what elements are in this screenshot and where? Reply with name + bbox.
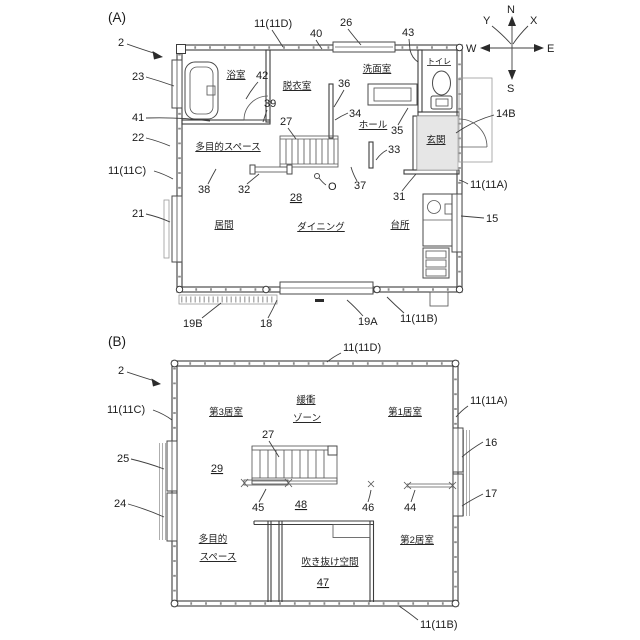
a-ref-33: 33 — [388, 144, 400, 156]
b-leader-27 — [269, 441, 279, 457]
a-ref-11c: 11(11C) — [108, 165, 146, 177]
a-room-dressing: 脱衣室 — [283, 80, 312, 92]
a-ref-15: 15 — [486, 213, 498, 225]
a-corner-post — [177, 45, 186, 54]
b-ref-2: 2 — [118, 365, 124, 377]
a-porch-outline — [459, 78, 492, 162]
compass-y-label: Y — [483, 15, 491, 27]
b-ref-17: 17 — [485, 488, 497, 500]
b-ref-29: 29 — [211, 463, 223, 475]
compass-east-arrow — [534, 44, 544, 52]
a-leader-34 — [335, 113, 348, 120]
b-ref-27: 27 — [262, 429, 274, 441]
a-ref-42: 42 — [256, 70, 268, 82]
a-entrance-kitchen-wall — [404, 170, 459, 174]
diagram-b: (B) — [107, 334, 508, 631]
diagram-a: (A) — [108, 10, 516, 330]
a-ref-28: 28 — [290, 192, 302, 204]
a-exterior-unit — [430, 292, 448, 306]
b-leader-45 — [259, 489, 266, 502]
a-ref-19a: 19A — [358, 316, 378, 328]
b-leader-24 — [128, 504, 164, 517]
a-room-washroom: 洗面室 — [363, 63, 392, 75]
a-ref-2: 2 — [118, 37, 124, 49]
a-toilet-fixtures — [431, 71, 452, 109]
a-toilet-wall-v — [418, 50, 422, 112]
a-ref-34: 34 — [349, 108, 361, 120]
b-multipurpose-line1: 多目的 — [199, 533, 228, 545]
b-ref-25: 25 — [117, 453, 129, 465]
b-multipurpose-line2: スペース — [200, 552, 237, 563]
a-leader-31 — [402, 174, 416, 191]
b-arrowhead-2 — [152, 379, 162, 387]
compass-rose: N S W E X Y — [466, 4, 554, 95]
b-ref-45: 45 — [252, 502, 264, 514]
a-leader-11c — [154, 171, 173, 179]
a-hall-divider-post — [329, 84, 333, 138]
a-stair-newel-o — [315, 174, 320, 179]
a-leader-22 — [146, 138, 170, 146]
a-ref-o: O — [328, 181, 337, 193]
a-ref-39: 39 — [264, 98, 276, 110]
diagram-a-title: (A) — [108, 10, 126, 25]
a-toilet-bowl — [433, 71, 451, 95]
b-leader-17 — [462, 494, 483, 506]
a-staircase — [250, 136, 338, 185]
patent-figure-page: (A) — [0, 0, 640, 640]
b-ref-16: 16 — [485, 437, 497, 449]
a-leader-32 — [247, 174, 259, 184]
a-arrowhead-2 — [153, 51, 164, 60]
b-partition-44 — [368, 481, 456, 489]
a-room-bathroom: 浴室 — [226, 69, 245, 81]
a-ref-31: 31 — [393, 191, 405, 203]
a-entrance-wall-v — [413, 116, 417, 170]
a-leader-36 — [334, 90, 344, 107]
a-toilet-tank — [431, 96, 452, 109]
a-bathroom-wall-h — [182, 120, 270, 124]
a-leader-2 — [127, 44, 157, 54]
a-leader-19a — [347, 300, 363, 316]
a-room-multipurpose: 多目的スペース — [195, 141, 260, 153]
b-ref-46: 46 — [362, 502, 374, 514]
a-room-dining: ダイニング — [297, 221, 345, 233]
b-ref-48: 48 — [295, 499, 307, 511]
a-leader-42 — [246, 82, 258, 99]
b-buffer-zone-line1: 緩衝 — [296, 394, 316, 406]
a-leader-35 — [398, 108, 408, 125]
a-ref-32: 32 — [238, 184, 250, 196]
b-staircase — [241, 446, 337, 487]
a-living-shutter — [164, 200, 169, 258]
a-vanity-counter — [368, 84, 417, 105]
a-ref-43: 43 — [402, 27, 414, 39]
compass-x-label: X — [530, 15, 538, 27]
compass-y-line — [492, 26, 511, 44]
a-hall-post-33 — [369, 142, 373, 168]
a-leader-27 — [288, 128, 296, 139]
a-stair-railing — [252, 167, 291, 172]
floor-plan-figure: (A) — [0, 0, 640, 640]
a-leader-33 — [376, 150, 387, 160]
a-leader-15 — [461, 216, 484, 218]
a-leader-18 — [268, 300, 277, 318]
b-leader-2 — [127, 372, 155, 381]
compass-e-label: E — [547, 43, 554, 55]
b-buffer-zone-line2: ゾーン — [293, 413, 321, 424]
a-leader-23 — [146, 77, 174, 86]
compass-s-label: S — [507, 83, 514, 95]
compass-north-arrow — [508, 16, 516, 26]
a-leader-11b — [387, 297, 404, 313]
a-ref-23: 23 — [132, 71, 144, 83]
b-leader-11b — [399, 606, 418, 620]
a-ref-26: 26 — [340, 17, 352, 29]
a-leader-21 — [146, 214, 170, 222]
b-atrium-label: 吹き抜け空間 — [301, 556, 358, 568]
compass-w-label: W — [466, 43, 477, 55]
b-leader-25 — [131, 459, 164, 469]
a-door-direction-mark — [315, 299, 324, 302]
compass-x-line — [513, 26, 528, 44]
a-ref-11a: 11(11A) — [470, 179, 508, 191]
b-ref-11b: 11(11B) — [420, 619, 458, 631]
a-ref-40: 40 — [310, 28, 322, 40]
a-ref-18: 18 — [260, 318, 272, 330]
b-leader-16 — [462, 442, 483, 457]
b-room-2: 第2居室 — [400, 534, 434, 546]
b-ref-11d: 11(11D) — [343, 342, 381, 354]
b-leader-44 — [411, 490, 415, 502]
a-ref-22: 22 — [132, 132, 144, 144]
b-ref-11c: 11(11C) — [107, 404, 145, 416]
b-room-1: 第1居室 — [388, 406, 422, 418]
a-room-hall: ホール — [359, 120, 388, 131]
a-leader-19b — [202, 303, 221, 318]
a-leader-38 — [208, 169, 216, 184]
b-ref-44: 44 — [404, 502, 416, 514]
b-leader-lines — [127, 353, 483, 620]
a-ref-11d: 11(11D) — [254, 18, 292, 30]
compass-west-arrow — [480, 44, 490, 52]
compass-south-arrow — [508, 70, 516, 80]
a-ref-37: 37 — [354, 180, 366, 192]
a-ref-14b: 14B — [496, 108, 516, 120]
a-room-entrance: 玄関 — [426, 134, 445, 146]
a-room-living: 居間 — [214, 220, 233, 231]
b-room-3: 第3居室 — [209, 406, 243, 418]
b-leader-11c — [153, 410, 172, 420]
diagram-b-title: (B) — [108, 334, 126, 349]
b-atrium-inner-box — [333, 525, 370, 538]
a-washroom-counter — [368, 84, 417, 105]
a-toilet-wall-h — [418, 112, 459, 116]
b-leader-46 — [368, 490, 371, 502]
a-ref-38: 38 — [198, 184, 210, 196]
b-ref-47: 47 — [317, 577, 329, 589]
a-ref-36: 36 — [338, 78, 350, 90]
compass-n-label: N — [507, 4, 515, 16]
a-ref-11b: 11(11B) — [400, 313, 438, 325]
b-ref-11a: 11(11A) — [470, 395, 508, 407]
b-marker-46 — [368, 481, 374, 487]
a-leader-37 — [351, 167, 357, 181]
b-ref-24: 24 — [114, 498, 126, 510]
a-entrance-area — [417, 78, 492, 170]
b-stair-corner-box — [328, 446, 337, 455]
a-kitchen-fixtures — [423, 194, 455, 306]
a-ref-27: 27 — [280, 116, 292, 128]
a-kitchen-stove — [423, 248, 449, 278]
a-room-kitchen: 台所 — [390, 219, 410, 231]
a-ref-41: 41 — [132, 112, 144, 124]
a-ref-21: 21 — [132, 208, 144, 220]
a-ref-19b: 19B — [183, 318, 203, 330]
a-ref-35: 35 — [391, 125, 403, 137]
a-room-toilet: トイレ — [427, 57, 451, 66]
